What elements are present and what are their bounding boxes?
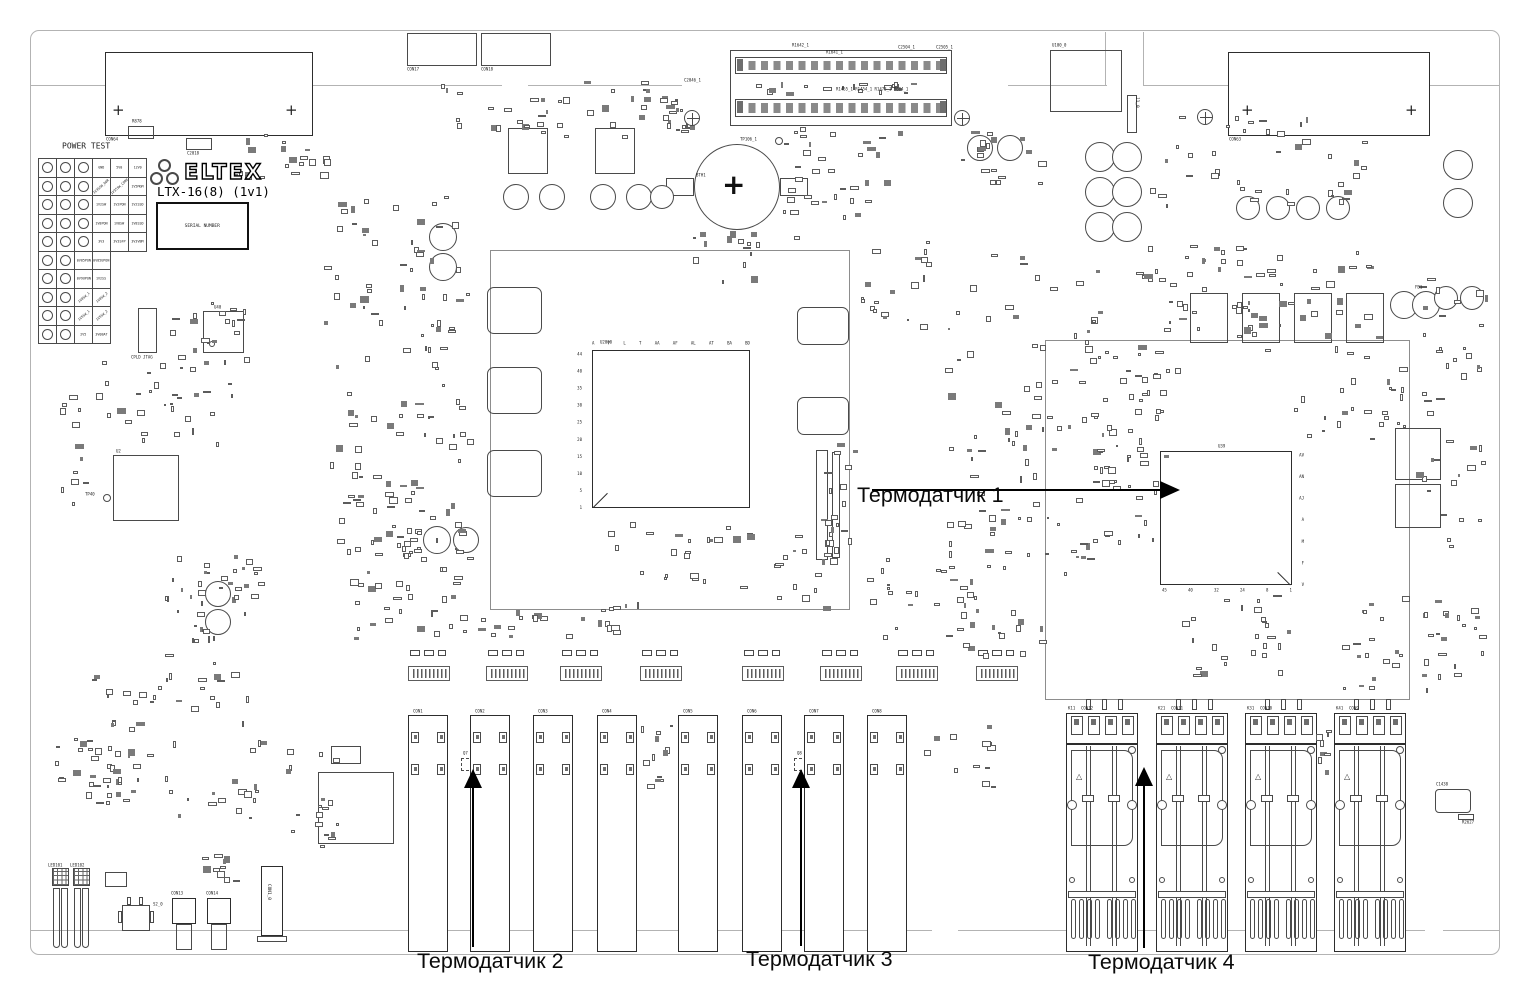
power-test-point xyxy=(38,288,57,308)
smd-component xyxy=(232,320,235,326)
smd-component xyxy=(108,746,112,751)
led-dot xyxy=(565,767,568,771)
silkscreen-label: CON7 xyxy=(809,709,819,714)
smd-component xyxy=(1248,301,1250,305)
panel-rail xyxy=(1143,32,1144,86)
led-tower xyxy=(74,888,81,948)
capacitor-circle xyxy=(1112,142,1142,172)
smd-component xyxy=(946,635,953,637)
smd-component xyxy=(399,609,402,615)
smd-component xyxy=(387,423,394,428)
smd-component xyxy=(1427,490,1431,492)
emi-finger xyxy=(1095,899,1100,939)
smd-component xyxy=(1255,634,1259,639)
smd-component xyxy=(193,313,197,319)
smd-component xyxy=(1135,375,1142,377)
cage-hole xyxy=(1306,800,1316,810)
smd-component xyxy=(203,629,210,634)
smd-component xyxy=(800,135,807,138)
smd-component xyxy=(904,92,908,94)
smd-component xyxy=(837,443,845,446)
smd-component xyxy=(1182,621,1190,627)
led-dot xyxy=(836,735,839,739)
smd-component xyxy=(947,522,954,528)
smd-component xyxy=(978,450,986,452)
smd-component xyxy=(1451,480,1458,485)
smd-component xyxy=(1269,274,1275,277)
smd-component xyxy=(825,520,833,526)
smd-component xyxy=(1098,311,1103,314)
smd-component xyxy=(1142,393,1148,395)
smd-component xyxy=(212,340,217,342)
smd-component xyxy=(1267,269,1276,272)
silkscreen-label: CON63 xyxy=(1229,137,1241,142)
smd-component xyxy=(352,223,358,225)
smd-component xyxy=(865,282,871,288)
smd-component xyxy=(660,98,668,103)
smd-component xyxy=(347,549,351,554)
smd-component xyxy=(1221,250,1225,256)
smd-component xyxy=(136,393,142,395)
smd-component xyxy=(244,357,249,363)
smd-component xyxy=(404,553,409,559)
smd-component xyxy=(1295,144,1301,150)
ic-outline xyxy=(1050,50,1122,112)
smd-component xyxy=(150,701,154,704)
smd-component xyxy=(147,754,154,758)
smd-component xyxy=(214,674,221,679)
cage-pin xyxy=(1192,699,1197,710)
smd-component xyxy=(971,457,974,461)
power-rail-label: 5V0 xyxy=(116,166,122,170)
resnet-part xyxy=(772,650,780,656)
smd-component xyxy=(1052,448,1058,451)
smd-component xyxy=(190,595,192,599)
smd-component xyxy=(1331,195,1335,197)
smd-component xyxy=(201,601,203,606)
smd-component xyxy=(190,319,198,324)
smd-component xyxy=(516,610,520,615)
led-dot xyxy=(1091,719,1096,725)
smd-component xyxy=(1139,438,1143,445)
smd-component xyxy=(1427,411,1434,417)
power-test-label-cell: 1V2SW xyxy=(92,195,111,215)
smd-component xyxy=(602,105,609,112)
cage-hole xyxy=(1308,877,1314,883)
smd-component xyxy=(232,779,238,785)
smd-component xyxy=(171,406,174,412)
smd-component xyxy=(915,591,918,597)
smd-component xyxy=(244,612,246,616)
smd-component xyxy=(822,201,827,204)
smd-component xyxy=(996,180,1001,186)
front-connector-con6 xyxy=(742,715,782,952)
emi-finger xyxy=(1123,899,1128,939)
smd-component xyxy=(204,571,207,574)
smd-component xyxy=(1355,324,1361,328)
silkscreen-label: U2 xyxy=(116,449,121,454)
silkscreen-label: S2_0 xyxy=(153,902,163,907)
smd-component xyxy=(1422,392,1426,397)
emi-finger xyxy=(1079,899,1084,939)
smd-component xyxy=(1363,610,1367,614)
smd-component xyxy=(1458,474,1460,476)
cage-hole xyxy=(1307,746,1315,754)
led-tower xyxy=(61,888,68,948)
smd-component xyxy=(178,355,186,360)
resnet-comb xyxy=(408,666,450,681)
smd-component xyxy=(1236,246,1244,250)
capacitor-circle xyxy=(539,184,565,210)
smd-component xyxy=(1403,425,1406,428)
smd-component xyxy=(416,252,424,257)
smd-component xyxy=(115,751,122,757)
top-connector xyxy=(481,33,551,66)
smd-component xyxy=(756,242,759,247)
smd-component xyxy=(198,678,207,683)
smd-component xyxy=(631,96,634,102)
smd-component xyxy=(417,219,425,225)
smd-component xyxy=(133,700,138,706)
smd-component xyxy=(830,558,838,565)
smd-component xyxy=(1370,438,1375,440)
smd-component xyxy=(231,672,240,679)
smd-component xyxy=(1005,551,1012,554)
led-dot xyxy=(836,767,839,771)
smd-component xyxy=(324,834,329,836)
smd-component xyxy=(230,308,237,311)
grid-label: 1 xyxy=(1290,588,1292,593)
annotation-thermal-sensor-4: Термодатчик 4 xyxy=(1088,950,1235,975)
silkscreen-label: CON6 xyxy=(747,709,757,714)
smd-component xyxy=(1057,523,1060,525)
plus-mark: + xyxy=(112,101,128,117)
smd-component xyxy=(652,754,654,761)
smd-component xyxy=(407,528,412,534)
smd-component xyxy=(387,506,395,508)
led-dot xyxy=(774,735,777,739)
smd-component xyxy=(455,548,457,550)
resnet-part xyxy=(992,650,1002,656)
smd-component xyxy=(564,135,568,137)
smd-component xyxy=(985,767,989,769)
smd-component xyxy=(850,186,858,190)
cage-hole xyxy=(1246,800,1256,810)
smd-component xyxy=(963,643,970,648)
smd-component xyxy=(393,205,398,211)
smd-component xyxy=(458,459,461,463)
smd-component xyxy=(1335,346,1338,353)
smd-component xyxy=(1265,623,1269,629)
resnet-comb xyxy=(486,666,528,681)
pcb-assembly-drawing: ELTEX LTX-16(8) (1v1) SERIAL NUMBER POWE… xyxy=(0,0,1534,986)
smd-component xyxy=(714,537,722,543)
led-dot xyxy=(539,735,542,739)
power-rail-label: 1V8SSD xyxy=(131,221,143,225)
smd-component xyxy=(537,122,544,127)
cage-hole xyxy=(1248,877,1254,883)
smd-component xyxy=(1020,256,1024,261)
power-test-label-cell: 1V2SSD xyxy=(128,195,147,215)
smd-component xyxy=(131,790,136,793)
smd-component xyxy=(840,188,846,191)
grid-label: 5 xyxy=(580,488,582,493)
smd-component xyxy=(1361,166,1367,169)
smd-component xyxy=(957,628,964,632)
smd-component xyxy=(911,83,917,85)
smd-component xyxy=(1459,518,1464,522)
smd-component xyxy=(348,495,355,498)
smd-component xyxy=(1401,387,1404,394)
power-rail-label: 0V85UPON xyxy=(93,258,109,262)
smd-component xyxy=(107,413,111,418)
smd-component xyxy=(1070,369,1078,371)
emi-finger xyxy=(1375,899,1380,939)
smd-component xyxy=(747,534,755,541)
smd-component xyxy=(421,557,427,562)
led-dot xyxy=(539,767,542,771)
smd-component xyxy=(1446,440,1454,443)
power-test-point xyxy=(38,251,57,271)
power-test-point xyxy=(56,232,75,252)
led-dot xyxy=(502,767,505,771)
smd-component xyxy=(1202,258,1205,264)
smd-component xyxy=(56,746,61,748)
power-test-point xyxy=(74,195,93,215)
smd-component xyxy=(956,311,960,315)
smd-component xyxy=(987,132,993,136)
smd-component xyxy=(129,727,135,732)
cage-pin xyxy=(1281,699,1286,710)
silkscreen-shape xyxy=(687,118,699,119)
smd-component xyxy=(1277,255,1283,261)
smd-component xyxy=(1212,151,1215,156)
emi-finger xyxy=(1250,899,1255,939)
smd-component xyxy=(998,176,1006,179)
led-dot xyxy=(476,735,479,739)
smd-component xyxy=(948,328,950,330)
smd-component xyxy=(630,522,636,528)
silkscreen-label: CPLD JTAG xyxy=(131,355,153,360)
smd-component xyxy=(622,135,628,138)
smd-component xyxy=(343,502,351,504)
smd-component xyxy=(667,123,670,128)
smd-component xyxy=(372,240,378,246)
smd-component xyxy=(1008,438,1011,442)
smd-component xyxy=(351,206,355,213)
smd-component xyxy=(794,236,800,240)
smd-component xyxy=(1096,270,1099,273)
smd-component xyxy=(337,226,343,233)
smd-component xyxy=(802,549,807,554)
smd-component xyxy=(400,264,407,266)
smd-component xyxy=(1079,381,1086,384)
power-test-point xyxy=(38,269,57,289)
smd-component xyxy=(437,320,442,326)
smd-component xyxy=(1040,345,1046,351)
smd-component xyxy=(223,859,226,863)
led-dot xyxy=(748,735,751,739)
smd-component xyxy=(1159,278,1165,281)
led-dot xyxy=(1342,719,1347,725)
smd-component xyxy=(615,545,618,551)
smd-component xyxy=(208,802,217,806)
capacitor-circle xyxy=(1112,177,1142,207)
smd-component xyxy=(639,115,645,120)
smd-component xyxy=(809,142,811,147)
smd-component xyxy=(1074,333,1077,340)
smd-component xyxy=(915,257,921,260)
resnet-part xyxy=(502,650,512,656)
smd-component xyxy=(405,498,412,502)
smd-component xyxy=(355,463,361,470)
smd-component xyxy=(982,781,990,787)
smd-component xyxy=(1025,459,1029,465)
smd-component xyxy=(153,695,156,699)
smd-component xyxy=(213,636,215,641)
emi-finger xyxy=(1363,899,1368,939)
smd-component xyxy=(1241,605,1243,611)
smd-component xyxy=(1192,311,1197,314)
smd-component xyxy=(197,612,205,616)
smd-component xyxy=(359,476,363,478)
capacitor-circle xyxy=(1296,196,1320,220)
led-tower xyxy=(53,888,60,948)
smd-component xyxy=(1338,266,1345,273)
smd-component xyxy=(478,628,486,630)
smd-component xyxy=(1392,663,1400,668)
smd-component xyxy=(137,778,139,782)
smd-component xyxy=(1036,382,1042,388)
grid-label: 30 xyxy=(577,403,582,408)
smd-component xyxy=(1436,633,1440,635)
power-test-point xyxy=(74,158,93,178)
smd-component xyxy=(411,491,415,496)
smd-component xyxy=(563,97,570,104)
smd-component xyxy=(1259,316,1267,322)
smd-component xyxy=(213,662,216,664)
smd-component xyxy=(887,584,890,586)
smd-component xyxy=(449,444,457,450)
smd-component xyxy=(1481,461,1485,465)
smd-component xyxy=(55,761,59,765)
grid-label: 40 xyxy=(1188,588,1193,593)
smd-component xyxy=(1461,373,1467,380)
smd-component xyxy=(451,595,456,599)
smd-component xyxy=(198,581,202,587)
smd-component xyxy=(682,125,686,129)
smd-component xyxy=(1372,677,1376,680)
smd-component xyxy=(291,830,295,833)
smd-component xyxy=(1454,300,1461,304)
smd-component xyxy=(417,547,421,550)
smd-component xyxy=(421,334,424,337)
cage-latch xyxy=(1376,795,1388,802)
smd-component xyxy=(1020,651,1026,658)
smd-component xyxy=(93,785,100,788)
led-dot xyxy=(1108,719,1113,725)
smd-component xyxy=(282,141,286,144)
silkscreen-label: C2046_1 xyxy=(684,78,701,83)
smd-component xyxy=(1248,121,1253,124)
emi-finger xyxy=(1185,899,1190,939)
resnet-part xyxy=(912,650,922,656)
silkscreen-label: CON13 xyxy=(171,891,183,896)
smd-component xyxy=(1001,519,1007,525)
smd-component xyxy=(1098,356,1101,360)
smd-component xyxy=(1426,688,1428,693)
resnet-part xyxy=(898,650,908,656)
smd-component xyxy=(804,85,808,88)
smd-component xyxy=(1120,378,1126,384)
smd-component xyxy=(234,331,240,334)
smd-component xyxy=(1438,674,1441,680)
smd-component xyxy=(208,636,210,643)
smd-component xyxy=(358,583,364,586)
grid-label: 35 xyxy=(577,386,582,391)
led-dot xyxy=(440,767,443,771)
smd-component xyxy=(396,581,403,587)
smd-component xyxy=(1135,515,1142,517)
smd-component xyxy=(1266,129,1270,135)
smd-component xyxy=(530,98,539,102)
led-dot xyxy=(1074,719,1079,725)
silkscreen-label: Q7 xyxy=(463,751,468,756)
smd-component xyxy=(296,814,300,817)
cage-hole xyxy=(1129,877,1135,883)
smd-component xyxy=(887,587,890,590)
capacitor-circle xyxy=(1443,188,1473,218)
smd-component xyxy=(481,618,486,622)
led-dot xyxy=(873,735,876,739)
battery-tab xyxy=(780,178,808,196)
dimm-key xyxy=(940,101,946,113)
smd-component xyxy=(1422,674,1427,677)
smd-component xyxy=(1302,139,1311,145)
smd-component xyxy=(214,854,223,858)
resnet-part xyxy=(1006,650,1014,656)
smd-component xyxy=(587,110,595,116)
smd-component xyxy=(1129,394,1135,400)
smd-component xyxy=(858,153,863,158)
led-dot xyxy=(414,767,417,771)
cage-hole xyxy=(1128,746,1136,754)
smd-component xyxy=(1463,347,1466,349)
smd-component xyxy=(1301,396,1305,403)
arrow-thermal-sensor-3 xyxy=(800,783,802,946)
smd-component xyxy=(365,356,371,362)
smd-component xyxy=(861,299,865,303)
smd-component xyxy=(663,115,669,121)
smd-component xyxy=(355,601,359,605)
smd-component xyxy=(1235,116,1239,121)
pin1-triangle-icon: △ xyxy=(1255,772,1265,782)
smd-component xyxy=(1342,411,1349,415)
smd-component xyxy=(178,814,181,818)
smd-component xyxy=(198,590,206,596)
silkscreen-shape xyxy=(42,292,53,303)
silkscreen-shape xyxy=(78,236,89,247)
smd-component xyxy=(1128,429,1133,433)
grid-label: A xyxy=(1302,518,1304,523)
smd-component xyxy=(873,309,877,313)
smd-component xyxy=(1462,624,1466,627)
power-rail-label: 1V2SS xyxy=(96,277,106,281)
silkscreen-shape xyxy=(60,236,71,247)
smd-component xyxy=(322,807,329,810)
smd-component xyxy=(254,784,257,790)
smd-component xyxy=(264,134,268,137)
